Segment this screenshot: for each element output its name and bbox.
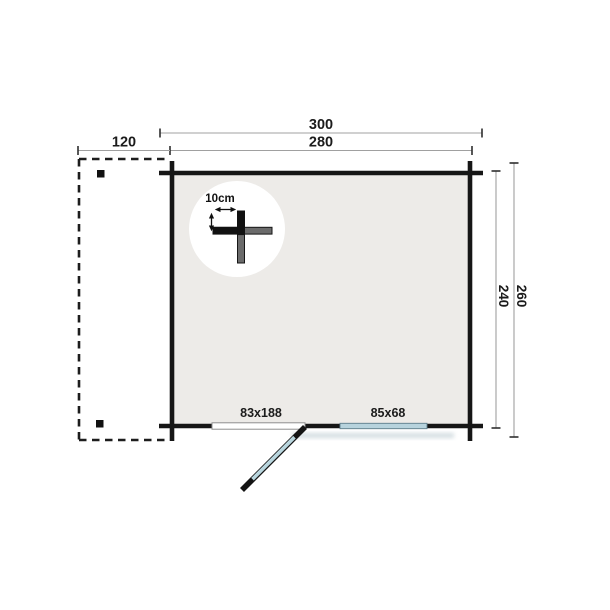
- canopy-post-top: [97, 170, 105, 178]
- dimension-overall-depth: 260: [510, 163, 530, 437]
- wall-thickness-label: 10cm: [205, 193, 234, 205]
- dim-label-cabin-width: 280: [309, 135, 333, 151]
- door-leaf: [242, 427, 305, 490]
- detail-log-vertical-end: [237, 211, 245, 236]
- door-leaf-panel: [253, 437, 295, 479]
- door-opening: [212, 423, 305, 429]
- dim-label-overall-depth: 260: [514, 285, 529, 308]
- dimension-canopy-width: 120: [78, 135, 170, 156]
- dim-label-overall-width: 300: [309, 117, 333, 133]
- door-size-label: 83x188: [240, 406, 282, 420]
- floor-plan-canvas: 10cm: [0, 0, 610, 610]
- dim-label-cabin-depth: 240: [496, 285, 511, 308]
- side-canopy-outline: [79, 159, 170, 440]
- floor-plan-drawing: 10cm: [0, 0, 610, 610]
- wall-detail-bubble: 10cm: [189, 181, 285, 277]
- front-wall-shadow: [292, 433, 454, 438]
- window: [340, 423, 427, 428]
- canopy-post-bottom: [96, 420, 104, 428]
- dim-label-canopy-width: 120: [112, 135, 136, 151]
- dimension-cabin-width: 280: [170, 135, 472, 156]
- dimension-cabin-depth: 240: [492, 171, 512, 428]
- window-size-label: 85x68: [371, 406, 406, 420]
